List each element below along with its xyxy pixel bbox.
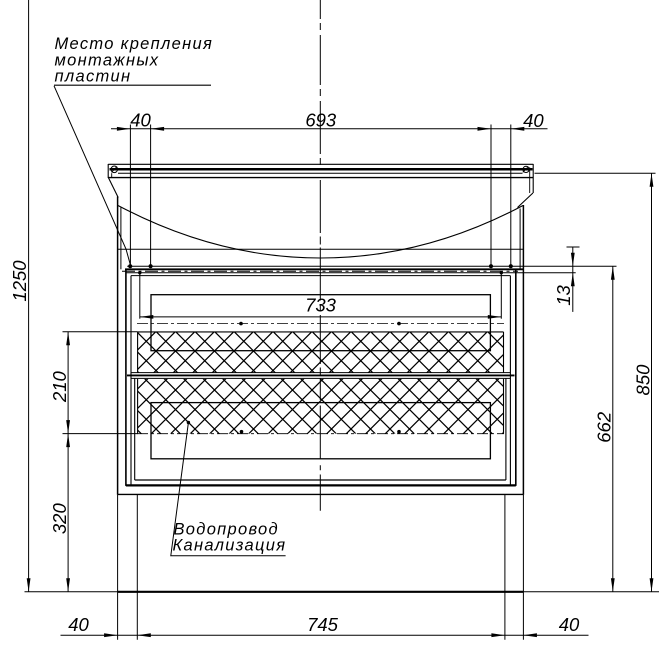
svg-text:40: 40 — [559, 614, 580, 635]
svg-text:662: 662 — [594, 411, 615, 443]
svg-text:пластин: пластин — [55, 67, 132, 85]
svg-text:40: 40 — [523, 110, 544, 131]
svg-text:850: 850 — [632, 364, 653, 396]
svg-text:693: 693 — [305, 109, 337, 130]
svg-text:40: 40 — [130, 109, 151, 130]
svg-text:1250: 1250 — [9, 260, 30, 302]
svg-text:210: 210 — [49, 370, 70, 403]
svg-text:40: 40 — [68, 614, 89, 635]
svg-text:733: 733 — [305, 294, 337, 315]
svg-text:745: 745 — [307, 614, 339, 635]
svg-text:13: 13 — [553, 285, 574, 306]
svg-text:320: 320 — [49, 503, 70, 535]
svg-text:Канализация: Канализация — [173, 536, 287, 554]
